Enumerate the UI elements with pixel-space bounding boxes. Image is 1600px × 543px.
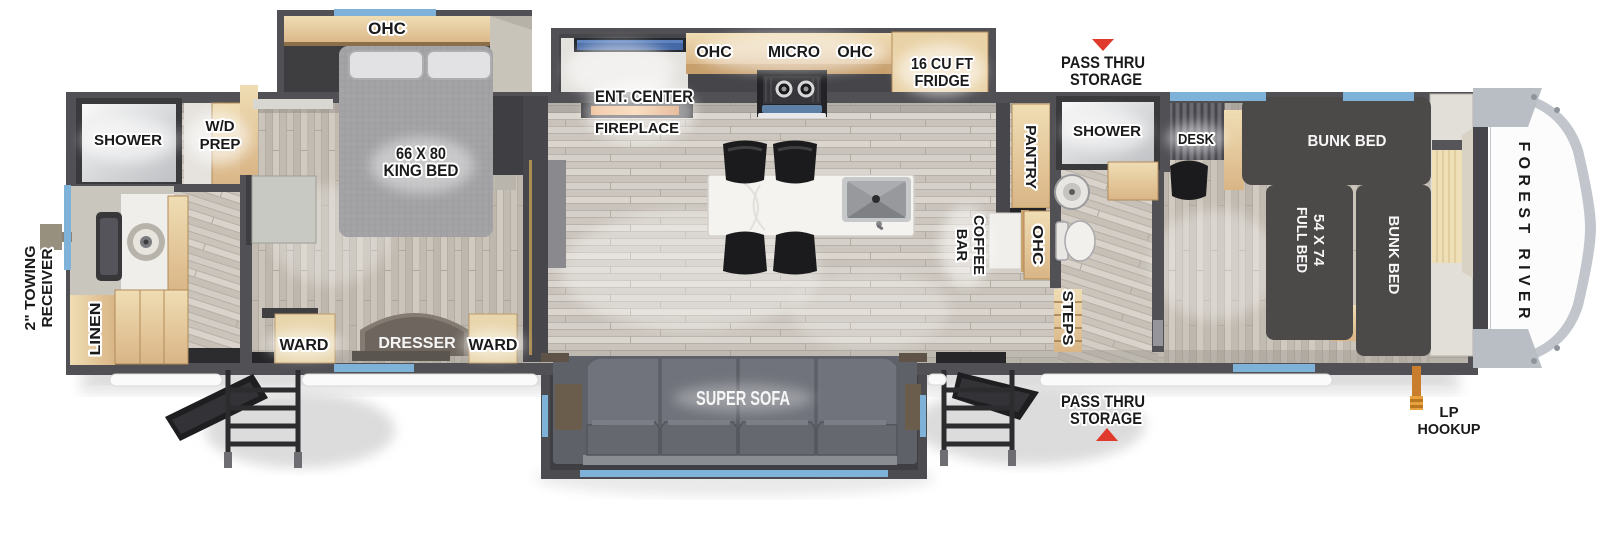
svg-text:FOREST RIVER: FOREST RIVER bbox=[1515, 142, 1532, 319]
svg-text:DESK: DESK bbox=[1178, 131, 1214, 148]
svg-text:FIREPLACE: FIREPLACE bbox=[595, 120, 679, 137]
svg-text:COFFEE: COFFEE bbox=[970, 215, 987, 275]
svg-text:2" TOWING: 2" TOWING bbox=[22, 246, 39, 331]
svg-text:WARD: WARD bbox=[280, 337, 329, 354]
svg-text:W/D: W/D bbox=[205, 118, 234, 135]
svg-text:HOOKUP: HOOKUP bbox=[1418, 421, 1481, 438]
svg-text:WARD: WARD bbox=[469, 337, 518, 354]
svg-text:OHC: OHC bbox=[1029, 225, 1046, 265]
svg-text:SHOWER: SHOWER bbox=[1073, 123, 1141, 140]
svg-text:FRIDGE: FRIDGE bbox=[915, 73, 970, 90]
svg-text:PANTRY: PANTRY bbox=[1022, 125, 1039, 189]
svg-text:ENT. CENTER: ENT. CENTER bbox=[595, 87, 693, 106]
svg-text:RECEIVER: RECEIVER bbox=[39, 248, 56, 327]
svg-text:DRESSER: DRESSER bbox=[378, 335, 456, 352]
svg-text:SUPER SOFA: SUPER SOFA bbox=[696, 388, 790, 410]
svg-text:STEPS: STEPS bbox=[1059, 291, 1076, 346]
svg-text:OHC: OHC bbox=[696, 44, 732, 61]
svg-text:MICRO: MICRO bbox=[768, 44, 820, 61]
svg-text:54 X 74: 54 X 74 bbox=[1310, 214, 1327, 267]
svg-text:KING BED: KING BED bbox=[384, 161, 459, 180]
svg-text:LINEN: LINEN bbox=[87, 303, 104, 356]
svg-text:BUNK BED: BUNK BED bbox=[1308, 133, 1387, 150]
svg-text:LP: LP bbox=[1439, 404, 1458, 421]
svg-text:PREP: PREP bbox=[200, 136, 241, 153]
svg-text:STORAGE: STORAGE bbox=[1070, 70, 1142, 89]
svg-text:16 CU FT: 16 CU FT bbox=[911, 56, 973, 73]
svg-text:OHC: OHC bbox=[837, 44, 873, 61]
svg-text:FULL BED: FULL BED bbox=[1293, 207, 1310, 273]
svg-text:BAR: BAR bbox=[953, 229, 970, 262]
svg-text:OHC: OHC bbox=[368, 19, 406, 38]
svg-text:BUNK BED: BUNK BED bbox=[1385, 216, 1402, 295]
svg-text:SHOWER: SHOWER bbox=[94, 132, 162, 149]
svg-text:STORAGE: STORAGE bbox=[1070, 409, 1142, 428]
